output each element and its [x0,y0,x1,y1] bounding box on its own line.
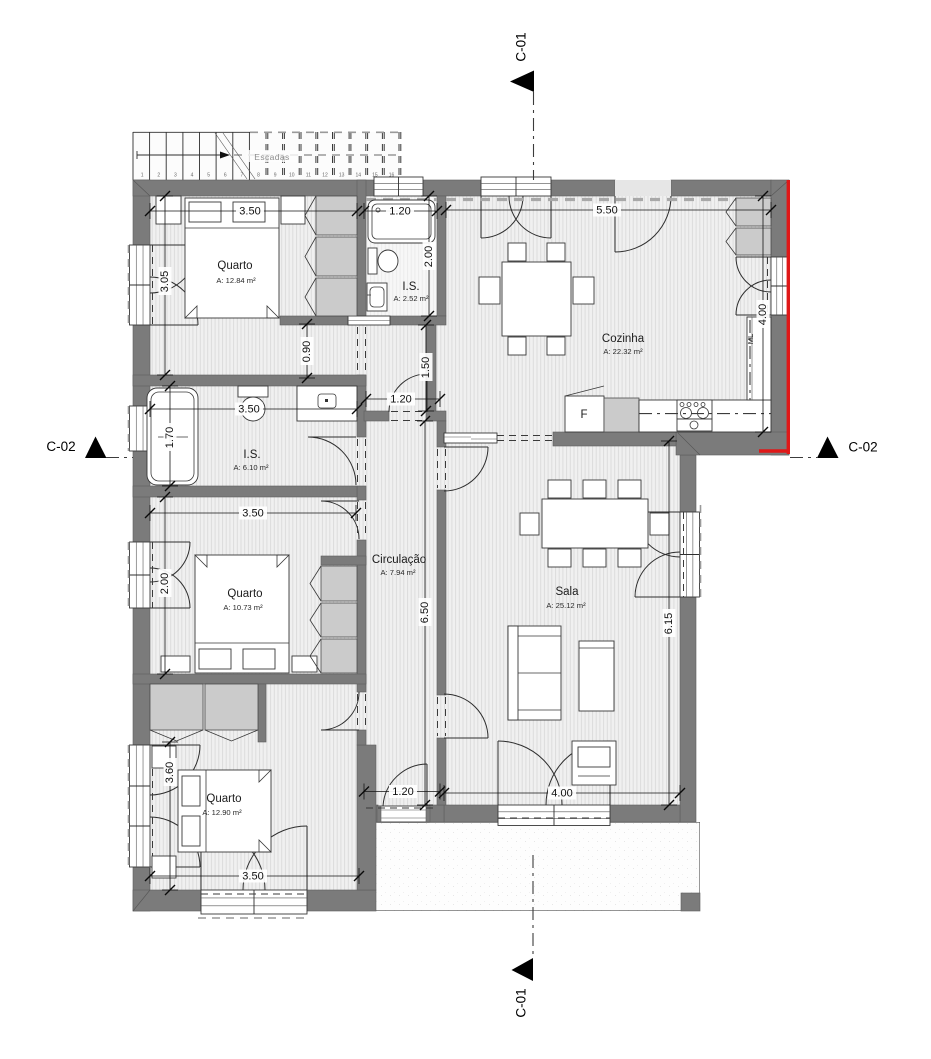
svg-text:2: 2 [157,173,160,179]
svg-text:8: 8 [257,173,260,179]
svg-text:3.05: 3.05 [159,271,171,292]
svg-text:6: 6 [224,173,227,179]
svg-text:Cozinha: Cozinha [602,333,645,345]
svg-text:C-02: C-02 [46,439,75,454]
svg-text:A: 7.94 m²: A: 7.94 m² [380,568,415,577]
svg-text:3: 3 [174,173,177,179]
svg-text:C-01: C-01 [514,988,529,1017]
svg-text:I.S.: I.S. [243,449,260,461]
svg-text:Quarto: Quarto [227,588,262,600]
svg-text:Circulação: Circulação [372,554,426,566]
svg-text:A: 10.73 m²: A: 10.73 m² [223,603,263,612]
svg-text:ML: ML [746,334,755,345]
svg-text:Quarto: Quarto [217,260,252,272]
svg-text:5.50: 5.50 [596,204,617,216]
svg-text:I.S.: I.S. [402,281,419,293]
svg-text:Escadas: Escadas [254,152,289,162]
svg-text:C-01: C-01 [514,32,529,61]
svg-text:6.15: 6.15 [663,613,675,634]
svg-text:2.00: 2.00 [423,246,435,267]
svg-text:1.20: 1.20 [392,786,413,798]
svg-text:1.70: 1.70 [164,427,176,448]
svg-text:Quarto: Quarto [206,793,241,805]
svg-text:C-02: C-02 [848,440,877,455]
svg-text:A: 22.32 m²: A: 22.32 m² [603,347,643,356]
svg-text:1.20: 1.20 [390,393,411,405]
svg-text:9: 9 [274,173,277,179]
svg-text:A: 2.52 m²: A: 2.52 m² [393,294,428,303]
svg-text:4: 4 [191,173,194,179]
svg-text:A: 12.84 m²: A: 12.84 m² [216,276,256,285]
svg-text:1.20: 1.20 [389,205,410,217]
svg-text:6.50: 6.50 [419,602,431,623]
svg-text:3.60: 3.60 [164,762,176,783]
svg-text:A: 6.10 m²: A: 6.10 m² [233,463,268,472]
svg-text:A: 25.12 m²: A: 25.12 m² [546,601,586,610]
svg-text:1.50: 1.50 [420,357,432,378]
svg-text:3.50: 3.50 [239,205,260,217]
svg-text:3.50: 3.50 [238,403,259,415]
svg-text:10: 10 [289,173,295,179]
svg-text:F: F [580,409,587,421]
svg-text:2.00: 2.00 [159,573,171,594]
svg-text:4.00: 4.00 [551,787,572,799]
svg-text:A: 12.90 m²: A: 12.90 m² [202,808,242,817]
svg-text:5: 5 [207,173,210,179]
svg-text:3.50: 3.50 [242,870,263,882]
svg-text:14: 14 [356,173,362,179]
svg-text:Sala: Sala [555,586,579,598]
svg-text:13: 13 [339,173,345,179]
svg-text:11: 11 [306,173,311,179]
svg-text:3.50: 3.50 [242,507,263,519]
svg-text:4.00: 4.00 [757,304,769,325]
svg-text:1: 1 [141,173,144,179]
svg-text:12: 12 [322,173,328,179]
svg-text:0.90: 0.90 [301,341,313,362]
